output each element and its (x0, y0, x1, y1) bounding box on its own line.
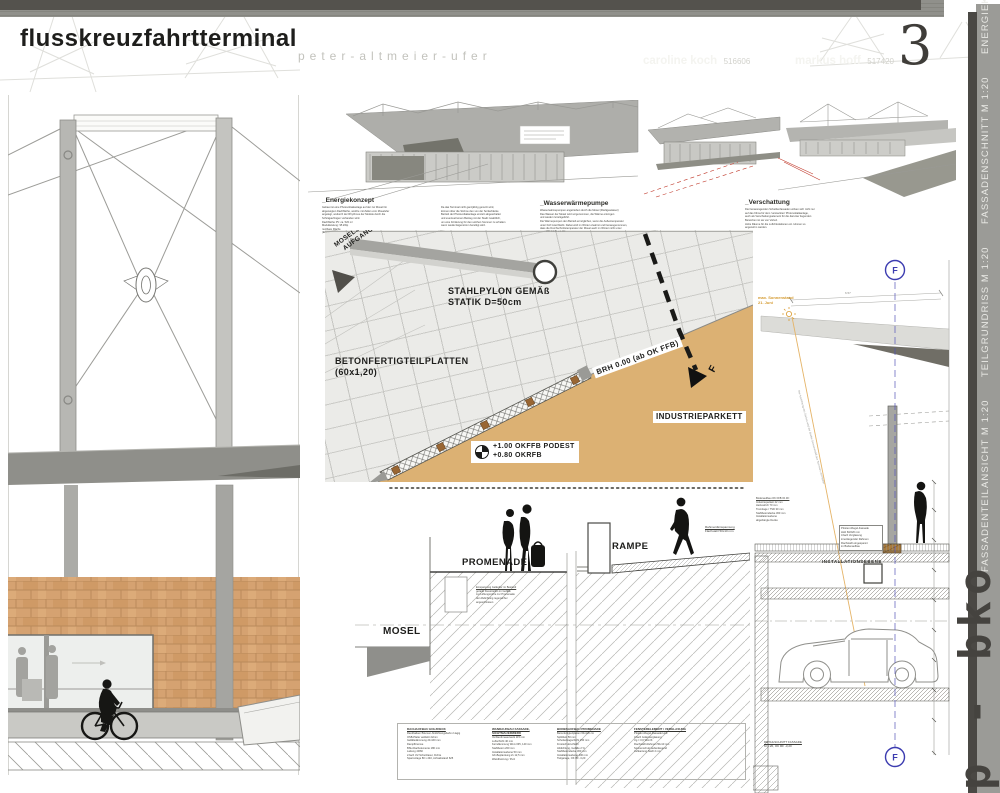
legend-header: WANDAUFBAU FASSADE, SICHTMAUERWERK (492, 727, 552, 735)
terrace-plan: F MOSELSEITEAUFGANG STAHLPYLON GEMÄßSTAT… (325, 230, 753, 482)
detail-window-note: Pfosten-Riegel-FassadeHolz 60/220 mm3-fa… (839, 525, 883, 551)
stahlpylon-symbol (534, 261, 556, 283)
rahmen-note: Rahmen/EinspannungFlachstahl 50x10 mm (705, 525, 751, 533)
car-outline (779, 629, 938, 688)
promenade-label: PROMENADE (462, 557, 527, 569)
author-1-id: 516606 (724, 57, 751, 66)
perspective-sketches (308, 100, 956, 200)
industrieparkett-label: INDUSTRIEPARKETT (653, 411, 746, 423)
author-2-id: 517420 (867, 57, 894, 66)
stahlpylon-label: STAHLPYLON GEMÄßSTATIK D=50cm (448, 286, 550, 309)
legend-column-wand: WANDAUFBAU FASSADE, SICHTMAUERWERK Verbl… (492, 727, 552, 761)
caption-text: Die herausragenden Scheibenfassaden wirk… (745, 208, 860, 230)
elevation-marker-icon (475, 445, 489, 459)
page-subtitle: peter-altmeier-ufer (298, 49, 492, 63)
installationsebene-label: INSTALLATIONSEBENE (822, 559, 882, 565)
legend-header: BODENAUFBAU PROMENADE (557, 727, 621, 731)
sketch-waermepumpe (644, 108, 780, 197)
podest-label: +1.00 OKFFB PODEST+0.80 OKRFB (471, 441, 579, 463)
author-2: markus hoff 517420 (795, 51, 894, 69)
presentation-board: flusskreuzfahrtterminal peter-altmeier-u… (0, 0, 1000, 793)
author-1: caroline koch 516606 (643, 51, 750, 69)
mosel-water (367, 647, 430, 677)
caption-title: _Energiekonzept (322, 197, 534, 204)
walking-man-silhouette (670, 498, 694, 555)
index-bar-label: FASSADENTEILANSICHT M 1:20 TEILGRUNDRISS… (980, 14, 1000, 572)
detail-left-note: Bodenaufbau OK FFB ±0.00:Industrieparket… (756, 497, 804, 522)
sheet-number: 3 (898, 14, 932, 77)
legend-column-dach: DACHAUFBAU HOLZDECK Randbalken Bitumen A… (407, 727, 487, 761)
pylon-elevation (8, 95, 300, 777)
beton-label: BETONFERTIGTEILPLATTEN(60x1,20) (335, 356, 468, 379)
rampe-label: RAMPE (612, 541, 648, 553)
standing-woman-silhouette (914, 482, 927, 543)
caption-title: _Verschattung (745, 199, 860, 206)
caption-verschattung: _Verschattung Die herausragenden Scheibe… (745, 199, 860, 230)
legend-lines: Randbalken Bitumen Abdichtungsbahn 2-lag… (407, 732, 487, 761)
legend-lines: Pfosten-Riegel-Fassade Holz3-fach Isolie… (634, 732, 690, 754)
header-band-dark (0, 0, 921, 10)
sketch-energiekonzept (308, 100, 638, 200)
detail-bottom-note: DETAILSCHNITT FASSADEM 1:20, OK RF -3,20 (764, 740, 824, 748)
axis-letter-bottom: F (892, 753, 898, 763)
axis-letter-top: F (892, 266, 898, 276)
detail-dim-note: 6.57 (845, 291, 851, 295)
ramp-door (588, 523, 610, 573)
mosel-label: MOSEL (383, 626, 421, 639)
legend-lines: Betonfertigteilplatten 60x120 cmSplittbe… (557, 732, 621, 761)
aufgang-arrow-icon (332, 270, 355, 293)
cable-connector-icon (124, 268, 168, 302)
legend-column-fenster: FENSTERELEMENT / VERGLASUNG Pfosten-Rieg… (634, 727, 690, 754)
legend-header: FENSTERELEMENT / VERGLASUNG (634, 727, 690, 731)
page-title: flusskreuzfahrtterminal (20, 25, 297, 53)
sketch-verschattung (778, 102, 956, 197)
caption-title: _Wasserwärmepumpe (540, 200, 668, 207)
legend-header: DACHAUFBAU HOLZDECK (407, 727, 487, 731)
ground-note: Einspannung Geländer im Bestandgerade Ki… (476, 586, 528, 604)
author-2-name: markus hoff (795, 55, 861, 67)
plan-top-note: OK FFB +1.00 (546, 230, 565, 233)
sun-label: max. Sonnenstand21. Juni (758, 295, 794, 305)
legend-column-boden: BODENAUFBAU PROMENADE Betonfertigteilpla… (557, 727, 621, 761)
signature-pbko: p - bko (950, 535, 1000, 790)
legend-lines: Verblendmauerwerk 115 mmLuftschicht 40 m… (492, 736, 552, 761)
author-1-name: caroline koch (643, 55, 717, 67)
terminal-window (8, 635, 153, 709)
